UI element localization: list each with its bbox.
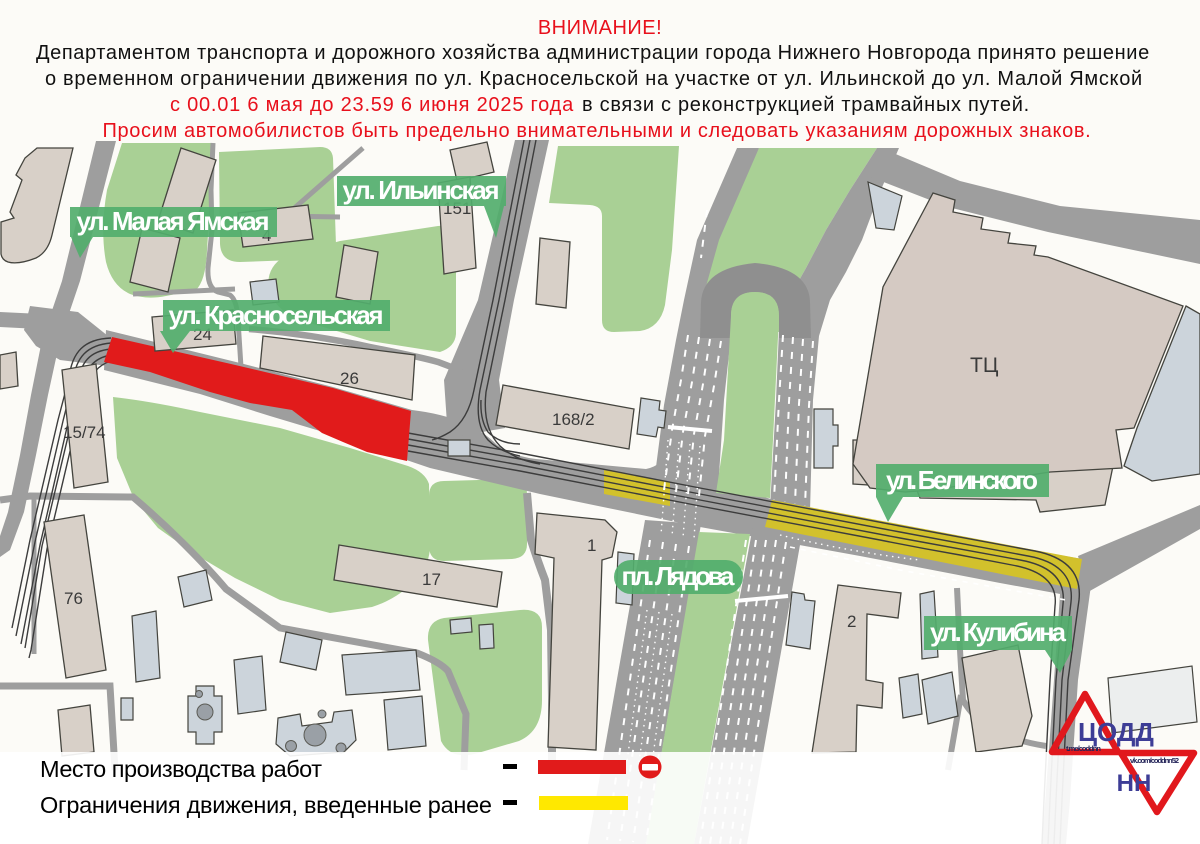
svg-text:ул. Малая Ямская: ул. Малая Ямская (77, 206, 270, 236)
svg-text:Департаментом транспорта и дор: Департаментом транспорта и дорожного хоз… (36, 42, 1150, 64)
svg-text:ТЦ: ТЦ (970, 354, 999, 377)
svg-text:ул. Ильинская: ул. Ильинская (343, 175, 500, 205)
svg-text:1: 1 (587, 536, 596, 555)
svg-text:vk.com/coddnn52: vk.com/coddnn52 (1130, 756, 1179, 765)
svg-text:76: 76 (64, 589, 83, 608)
svg-text:168/2: 168/2 (552, 410, 595, 429)
svg-text:о временном ограничении движе: о временном ограничении движения по ул. … (45, 68, 1143, 90)
svg-text:15/74: 15/74 (63, 423, 106, 442)
svg-text:Ограничения движения, введенны: Ограничения движения, введенные ранее (40, 792, 492, 818)
svg-text:17: 17 (422, 570, 441, 589)
svg-text:t.me/coddnn: t.me/coddnn (1066, 744, 1101, 753)
svg-text:с 00.01 6 мая до 23.59 6 июня: с 00.01 6 мая до 23.59 6 июня 2025 года (170, 94, 574, 116)
svg-text:НН: НН (1117, 770, 1152, 797)
svg-text:Место производства работ: Место производства работ (40, 756, 322, 782)
svg-text:ул. Кулибина: ул. Кулибина (930, 617, 1067, 647)
svg-text:ул. Красносельская: ул. Красносельская (169, 300, 384, 330)
svg-text:ЦОДД: ЦОДД (1078, 717, 1154, 747)
svg-text:Просим автомобилистов быть пре: Просим автомобилистов быть предельно вни… (103, 120, 1092, 142)
svg-text:2: 2 (847, 612, 856, 631)
svg-text:пл. Лядова: пл. Лядова (622, 561, 736, 591)
svg-text:ВНИМАНИЕ!: ВНИМАНИЕ! (538, 17, 662, 39)
svg-text:ул. Белинского: ул. Белинского (886, 465, 1038, 495)
svg-text:в связи с реконструкцией трамв: в связи с реконструкцией трамвайных путе… (582, 94, 1030, 116)
svg-text:26: 26 (340, 369, 359, 388)
